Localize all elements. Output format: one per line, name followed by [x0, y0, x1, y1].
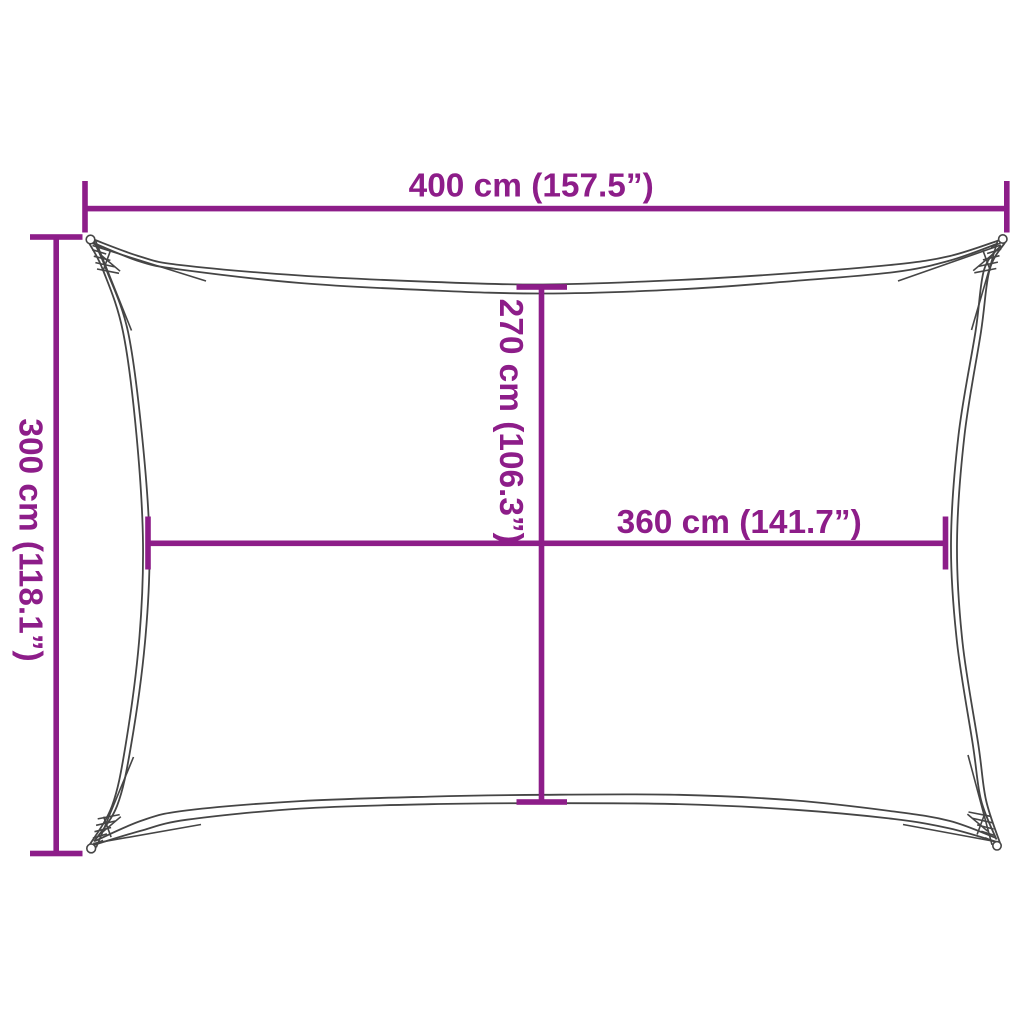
- svg-text:300 cm (118.1”): 300 cm (118.1”): [12, 418, 49, 661]
- svg-text:360 cm (141.7”): 360 cm (141.7”): [617, 504, 862, 541]
- svg-text:400 cm (157.5”): 400 cm (157.5”): [409, 168, 654, 205]
- svg-text:270 cm (106.3”): 270 cm (106.3”): [492, 299, 529, 544]
